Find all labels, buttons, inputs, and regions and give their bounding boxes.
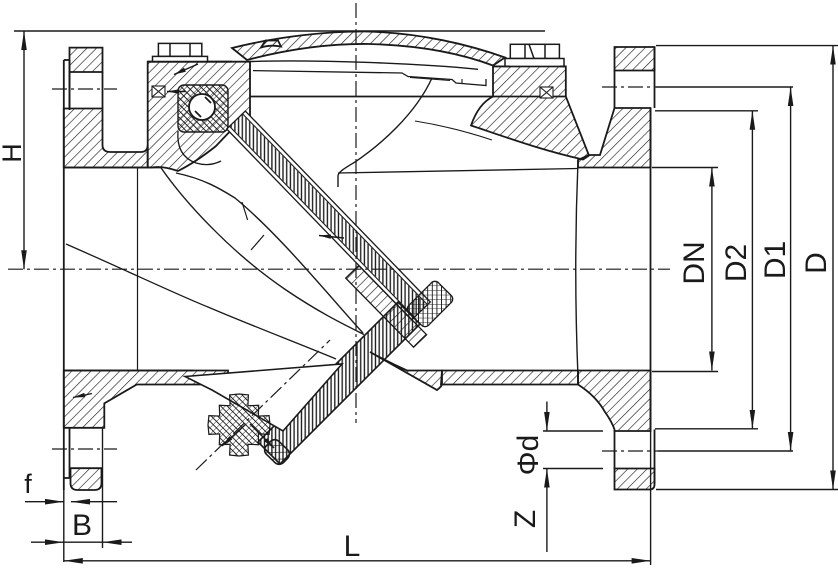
svg-text:D1: D1 xyxy=(759,241,792,279)
svg-text:Z: Z xyxy=(509,510,542,528)
svg-text:Φd: Φd xyxy=(512,435,545,476)
svg-text:DN: DN xyxy=(678,241,711,284)
svg-text:D2: D2 xyxy=(720,244,753,282)
svg-text:L: L xyxy=(344,530,361,563)
svg-text:D: D xyxy=(800,252,833,274)
svg-text:H: H xyxy=(0,143,27,163)
svg-text:f: f xyxy=(24,469,32,499)
svg-text:B: B xyxy=(72,509,92,542)
